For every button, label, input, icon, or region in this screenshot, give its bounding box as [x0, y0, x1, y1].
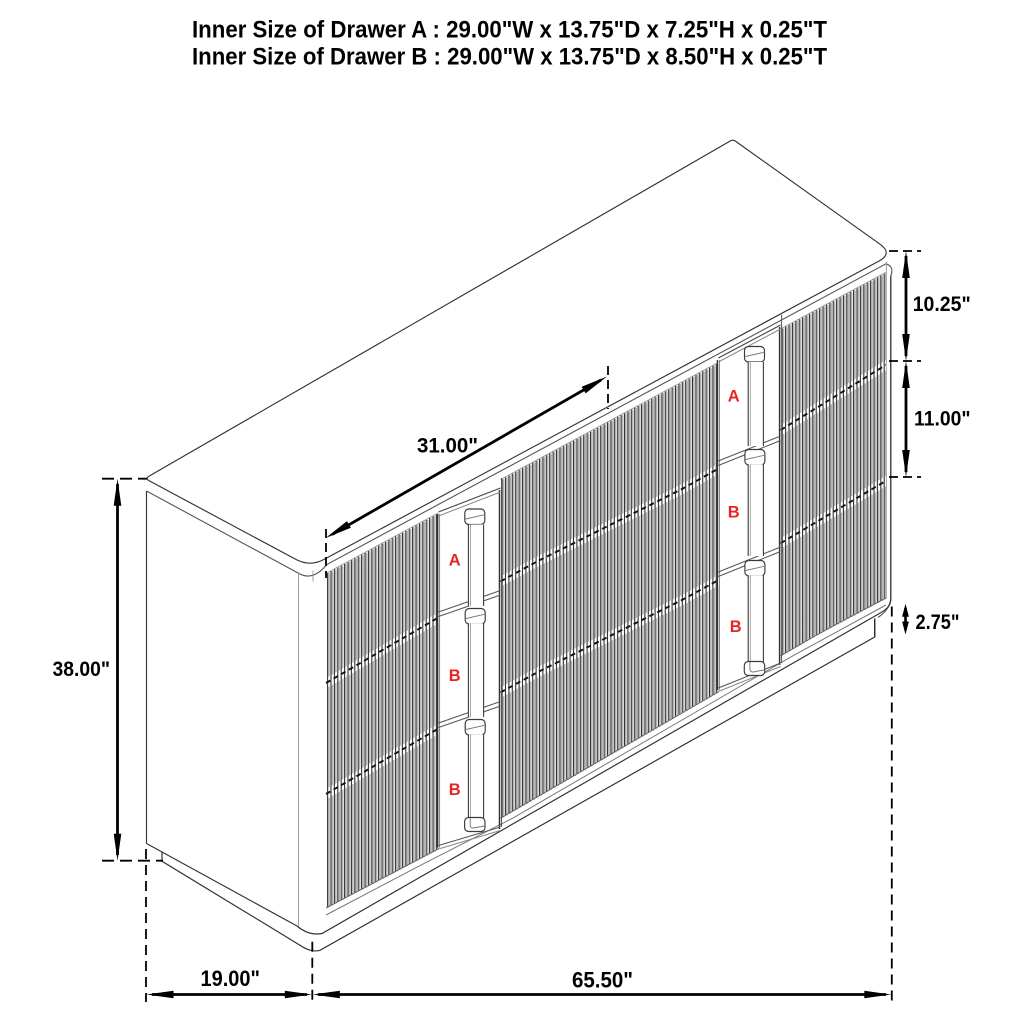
svg-text:11.00": 11.00" [914, 407, 971, 431]
svg-text:A: A [449, 552, 461, 570]
svg-text:31.00": 31.00" [417, 434, 478, 458]
svg-text:2.75": 2.75" [916, 610, 960, 634]
svg-text:Inner Size of Drawer B : 29.00: Inner Size of Drawer B : 29.00"W x 13.75… [192, 43, 827, 70]
svg-text:65.50": 65.50" [572, 968, 633, 993]
svg-text:19.00": 19.00" [201, 966, 261, 991]
svg-text:B: B [449, 781, 461, 799]
svg-text:B: B [449, 667, 461, 685]
svg-text:Inner Size of Drawer A : 29.00: Inner Size of Drawer A : 29.00"W x 13.75… [192, 17, 827, 44]
svg-text:38.00": 38.00" [53, 657, 111, 681]
svg-text:A: A [728, 388, 740, 406]
svg-text:B: B [730, 618, 742, 636]
svg-text:10.25": 10.25" [913, 292, 971, 316]
svg-text:B: B [728, 504, 740, 522]
